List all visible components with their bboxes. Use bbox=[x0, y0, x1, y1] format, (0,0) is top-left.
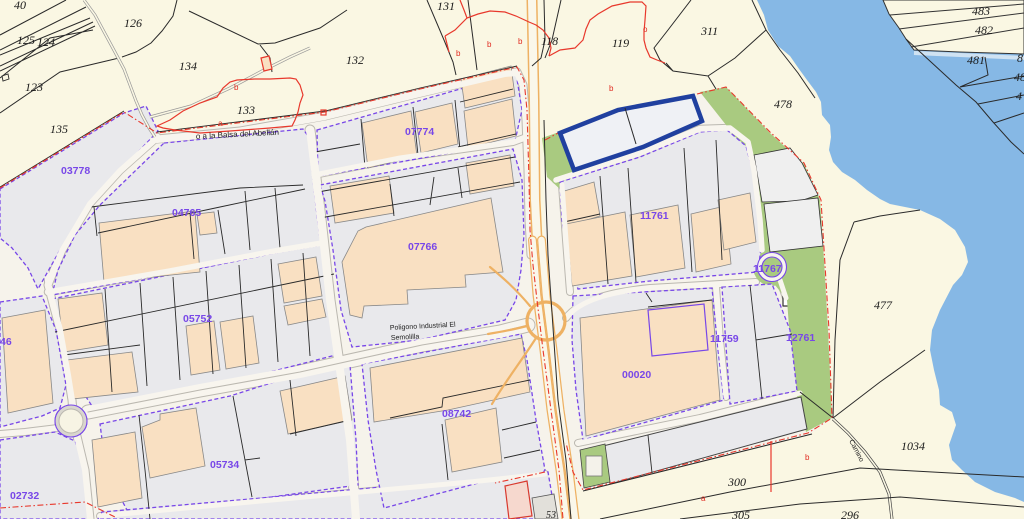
svg-text:07774: 07774 bbox=[405, 126, 434, 138]
svg-text:48: 48 bbox=[1014, 70, 1024, 84]
svg-text:b: b bbox=[456, 49, 461, 58]
svg-text:133: 133 bbox=[237, 103, 255, 117]
svg-text:11761: 11761 bbox=[640, 210, 669, 222]
svg-text:118: 118 bbox=[541, 34, 558, 48]
svg-text:11767: 11767 bbox=[753, 263, 782, 275]
svg-text:b: b bbox=[234, 83, 239, 92]
svg-text:b: b bbox=[609, 84, 614, 93]
svg-text:125: 125 bbox=[17, 33, 35, 47]
svg-text:08742: 08742 bbox=[442, 408, 471, 420]
svg-text:305: 305 bbox=[731, 508, 750, 519]
svg-text:o: o bbox=[643, 25, 648, 34]
svg-text:a: a bbox=[701, 494, 706, 503]
svg-text:132: 132 bbox=[346, 53, 364, 67]
svg-text:03778: 03778 bbox=[61, 165, 90, 177]
svg-text:07766: 07766 bbox=[408, 241, 437, 253]
svg-text:11759: 11759 bbox=[710, 333, 739, 345]
svg-text:05752: 05752 bbox=[183, 313, 212, 325]
svg-text:300: 300 bbox=[727, 475, 746, 489]
svg-text:124: 124 bbox=[37, 35, 55, 49]
svg-text:b: b bbox=[487, 40, 492, 49]
svg-text:b: b bbox=[518, 37, 523, 46]
svg-text:482: 482 bbox=[975, 23, 993, 37]
svg-text:134: 134 bbox=[179, 59, 197, 73]
svg-text:131: 131 bbox=[437, 0, 455, 13]
svg-text:a: a bbox=[218, 119, 223, 128]
svg-text:1034: 1034 bbox=[901, 439, 925, 453]
svg-text:05734: 05734 bbox=[210, 459, 239, 471]
svg-text:12761: 12761 bbox=[786, 332, 815, 344]
svg-text:296: 296 bbox=[841, 508, 859, 519]
svg-text:483: 483 bbox=[972, 4, 990, 18]
svg-text:04765: 04765 bbox=[172, 207, 201, 219]
svg-text:00020: 00020 bbox=[622, 369, 651, 381]
svg-text:119: 119 bbox=[612, 36, 629, 50]
svg-text:123: 123 bbox=[25, 80, 43, 94]
svg-text:40: 40 bbox=[14, 0, 26, 12]
svg-text:481: 481 bbox=[967, 53, 985, 67]
svg-text:311: 311 bbox=[700, 24, 718, 38]
svg-text:135: 135 bbox=[50, 122, 68, 136]
svg-text:126: 126 bbox=[124, 16, 142, 30]
svg-text:02732: 02732 bbox=[10, 490, 39, 502]
svg-text:477: 477 bbox=[874, 298, 893, 312]
svg-text:8: 8 bbox=[1017, 51, 1023, 65]
svg-text:53: 53 bbox=[546, 510, 556, 519]
svg-text:4: 4 bbox=[1016, 89, 1022, 103]
svg-text:46: 46 bbox=[0, 336, 12, 348]
svg-text:Semolilla: Semolilla bbox=[391, 334, 420, 342]
svg-text:b: b bbox=[805, 453, 810, 462]
svg-text:478: 478 bbox=[774, 97, 792, 111]
